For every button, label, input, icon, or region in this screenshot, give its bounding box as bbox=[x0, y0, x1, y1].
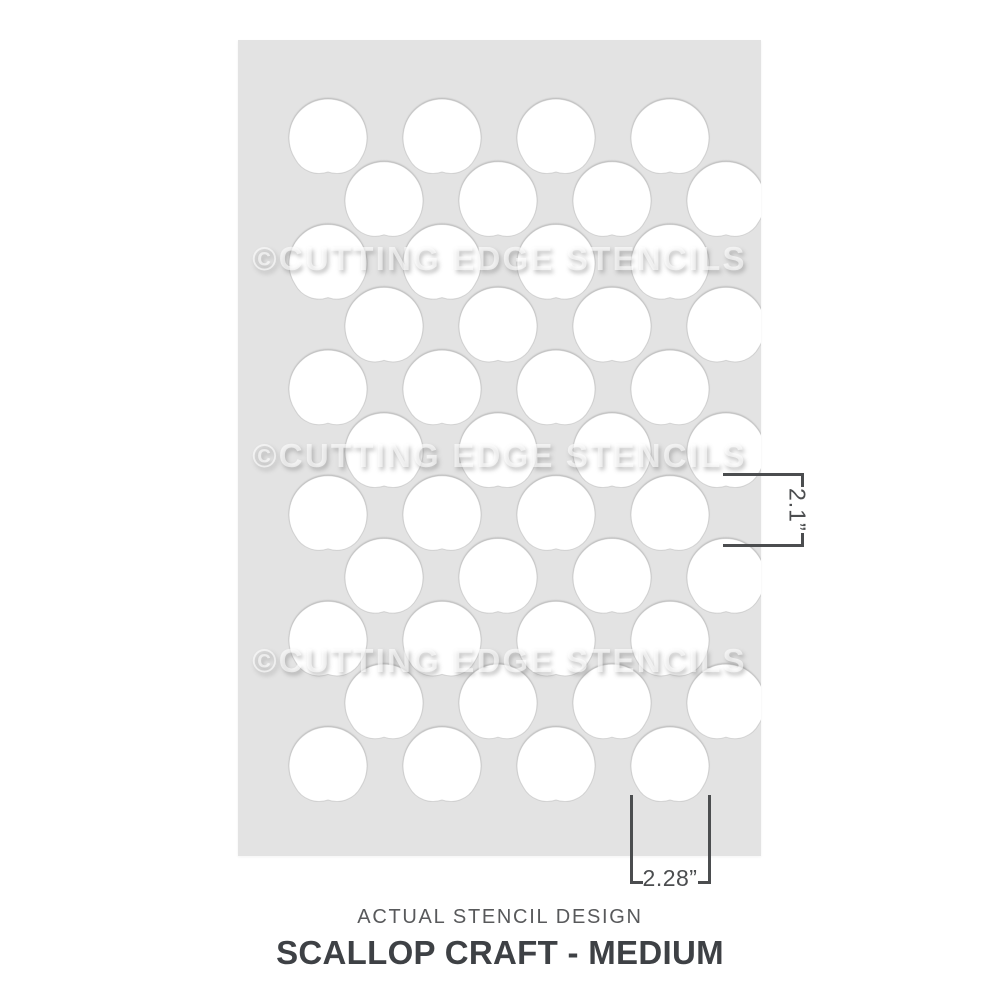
height-dimension-label: 2.1” bbox=[783, 483, 811, 537]
scallop-cutout bbox=[517, 99, 595, 174]
scallop-cutout bbox=[459, 287, 537, 362]
scallop-cutout bbox=[403, 350, 481, 425]
scallop-cutout bbox=[345, 539, 423, 614]
scallop-cutout bbox=[573, 413, 651, 488]
scallop-cutout bbox=[403, 225, 481, 300]
scallop-cutout bbox=[289, 727, 367, 802]
scallop-cutout bbox=[403, 476, 481, 551]
dimension-line bbox=[723, 544, 804, 547]
width-dimension-label: 2.28” bbox=[636, 866, 704, 890]
scallop-cutout bbox=[459, 539, 537, 614]
scallop-cutout bbox=[289, 601, 367, 676]
product-title: SCALLOP CRAFT - MEDIUM bbox=[0, 934, 1000, 972]
dimension-line bbox=[630, 795, 633, 884]
scallop-cutout bbox=[459, 162, 537, 237]
scallop-cutout bbox=[459, 664, 537, 739]
scallop-cutout bbox=[687, 287, 761, 362]
dimension-line bbox=[708, 795, 711, 884]
scallop-cutout bbox=[403, 601, 481, 676]
scallop-cutout bbox=[573, 539, 651, 614]
scallop-cutout bbox=[573, 287, 651, 362]
scallop-cutout bbox=[631, 99, 709, 174]
scallop-cutout bbox=[517, 601, 595, 676]
scallop-cutout bbox=[345, 664, 423, 739]
scallop-cutout bbox=[573, 162, 651, 237]
scallop-cutout bbox=[403, 727, 481, 802]
scallop-cutout bbox=[459, 413, 537, 488]
scallop-cutout bbox=[345, 162, 423, 237]
scallop-cutout bbox=[289, 225, 367, 300]
scallop-cutout bbox=[631, 476, 709, 551]
scallop-cutout bbox=[687, 664, 761, 739]
stencil-sheet: ©CUTTING EDGE STENCILS ©CUTTING EDGE STE… bbox=[238, 40, 761, 856]
scallop-cutout bbox=[687, 539, 761, 614]
scallop-cutout bbox=[631, 601, 709, 676]
product-image: ©CUTTING EDGE STENCILS ©CUTTING EDGE STE… bbox=[0, 0, 1000, 1000]
scallop-cutout bbox=[631, 350, 709, 425]
scallop-cutouts bbox=[289, 99, 761, 802]
scallop-cutout bbox=[573, 664, 651, 739]
scallop-cutout bbox=[517, 350, 595, 425]
scallop-cutout bbox=[631, 727, 709, 802]
scallop-cutout bbox=[687, 162, 761, 237]
scallop-cutout bbox=[289, 350, 367, 425]
scallop-cutout bbox=[517, 727, 595, 802]
scallop-pattern bbox=[238, 40, 761, 856]
scallop-cutout bbox=[403, 99, 481, 174]
scallop-cutout bbox=[687, 413, 761, 488]
scallop-cutout bbox=[517, 476, 595, 551]
scallop-cutout bbox=[345, 287, 423, 362]
scallop-cutout bbox=[631, 225, 709, 300]
scallop-cutout bbox=[289, 99, 367, 174]
product-caption: ACTUAL STENCIL DESIGN bbox=[0, 905, 1000, 929]
scallop-cutout bbox=[289, 476, 367, 551]
dimension-line bbox=[723, 473, 804, 476]
scallop-cutout bbox=[517, 225, 595, 300]
scallop-cutout bbox=[345, 413, 423, 488]
